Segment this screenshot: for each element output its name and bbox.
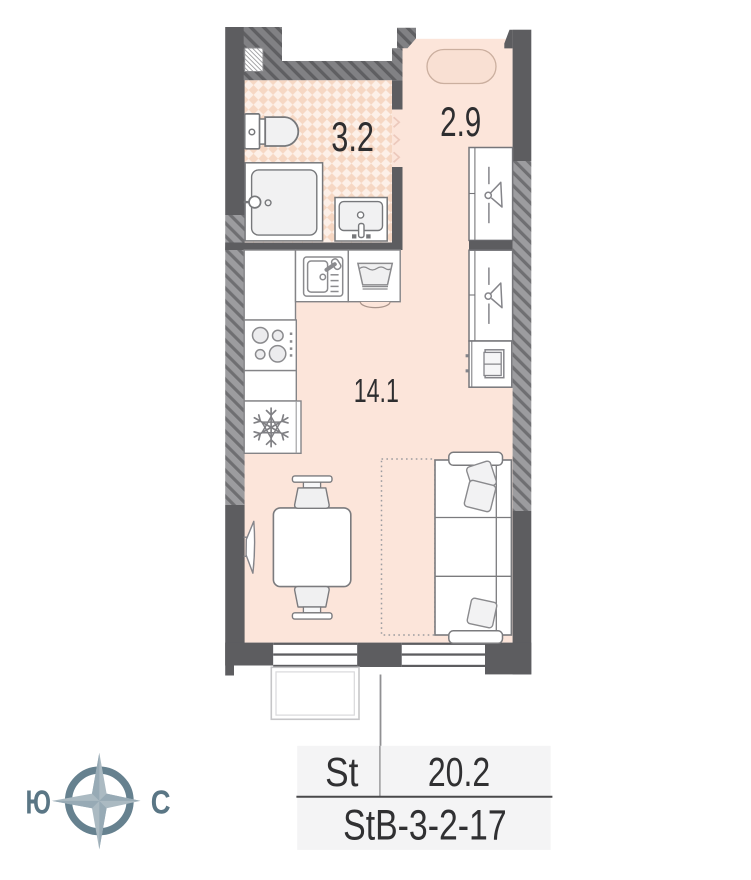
svg-text:14.1: 14.1: [354, 372, 399, 409]
svg-text:St: St: [325, 749, 359, 795]
svg-text:StB-3-2-17: StB-3-2-17: [343, 802, 507, 849]
svg-text:Ю: Ю: [25, 785, 51, 822]
svg-text:С: С: [151, 785, 171, 822]
svg-text:2.9: 2.9: [440, 98, 481, 145]
svg-text:20.2: 20.2: [428, 749, 490, 795]
svg-text:3.2: 3.2: [331, 113, 374, 160]
